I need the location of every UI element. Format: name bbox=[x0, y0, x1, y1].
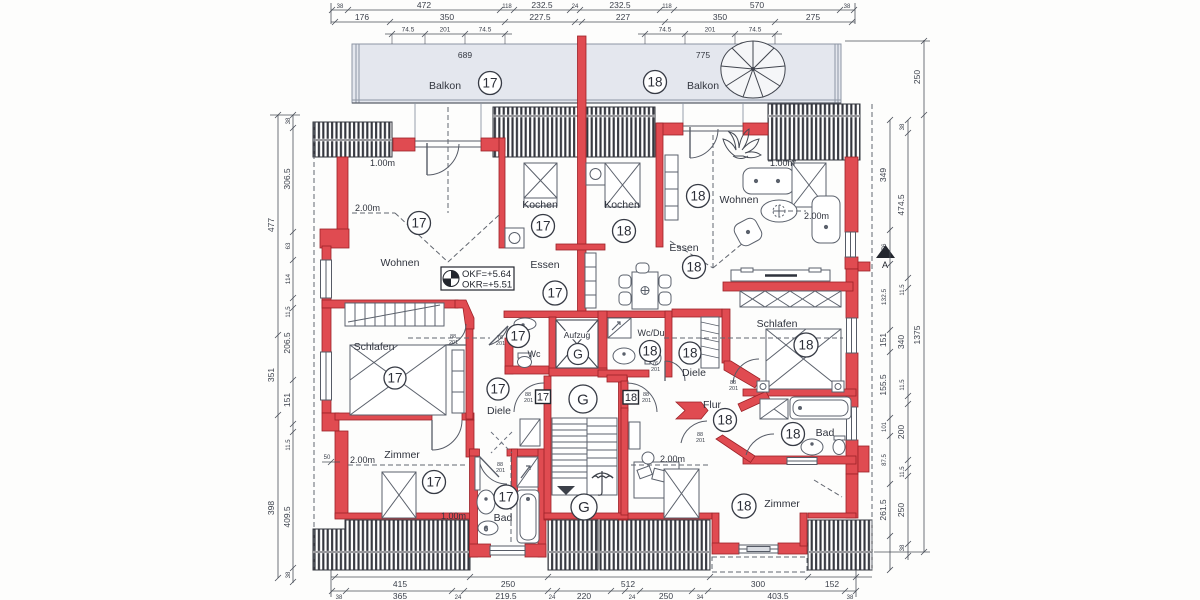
svg-text:Wc/Du: Wc/Du bbox=[638, 328, 665, 338]
svg-text:101: 101 bbox=[882, 421, 888, 432]
svg-text:17: 17 bbox=[490, 382, 505, 397]
svg-text:118: 118 bbox=[502, 4, 512, 10]
svg-text:232.5: 232.5 bbox=[609, 0, 631, 10]
svg-text:38: 38 bbox=[900, 123, 906, 130]
svg-text:152: 152 bbox=[825, 579, 839, 589]
svg-text:132.5: 132.5 bbox=[881, 288, 888, 305]
svg-text:1.00m: 1.00m bbox=[441, 511, 466, 521]
svg-text:17: 17 bbox=[535, 219, 550, 234]
svg-text:24: 24 bbox=[549, 595, 556, 600]
svg-text:201: 201 bbox=[696, 438, 705, 444]
svg-text:Zimmer: Zimmer bbox=[384, 449, 420, 461]
svg-text:689: 689 bbox=[458, 50, 472, 60]
svg-text:201: 201 bbox=[496, 468, 505, 474]
svg-text:220: 220 bbox=[577, 591, 591, 600]
svg-text:74.5: 74.5 bbox=[749, 27, 762, 34]
svg-text:398: 398 bbox=[266, 501, 276, 515]
svg-text:201: 201 bbox=[642, 398, 651, 404]
svg-text:409.5: 409.5 bbox=[282, 506, 292, 528]
svg-text:227.5: 227.5 bbox=[529, 12, 551, 22]
svg-text:155.5: 155.5 bbox=[878, 374, 888, 396]
svg-text:Diele: Diele bbox=[682, 367, 706, 379]
svg-text:477: 477 bbox=[266, 218, 276, 232]
svg-text:250: 250 bbox=[501, 579, 515, 589]
svg-text:250: 250 bbox=[659, 591, 673, 600]
svg-text:151: 151 bbox=[282, 393, 292, 407]
svg-text:512: 512 bbox=[621, 579, 635, 589]
svg-text:38: 38 bbox=[900, 544, 906, 551]
svg-text:38: 38 bbox=[847, 595, 854, 600]
svg-text:2.00m: 2.00m bbox=[660, 454, 685, 464]
svg-text:1.00m: 1.00m bbox=[770, 158, 795, 168]
svg-text:63: 63 bbox=[286, 242, 292, 249]
svg-text:2.00m: 2.00m bbox=[804, 211, 829, 221]
svg-text:306.5: 306.5 bbox=[282, 168, 292, 190]
svg-text:18: 18 bbox=[682, 346, 697, 361]
svg-text:18: 18 bbox=[647, 75, 662, 90]
svg-text:Aufzug: Aufzug bbox=[564, 330, 591, 340]
svg-text:74.5: 74.5 bbox=[402, 27, 415, 34]
svg-text:349: 349 bbox=[878, 168, 888, 182]
svg-text:17: 17 bbox=[537, 392, 549, 404]
svg-text:18: 18 bbox=[717, 413, 732, 428]
svg-text:Wc: Wc bbox=[528, 349, 541, 359]
svg-text:34: 34 bbox=[697, 595, 704, 600]
svg-text:76: 76 bbox=[882, 243, 888, 250]
svg-text:38: 38 bbox=[337, 4, 344, 10]
svg-text:11.5: 11.5 bbox=[900, 379, 906, 391]
svg-text:18: 18 bbox=[686, 260, 701, 275]
svg-text:365: 365 bbox=[393, 591, 407, 600]
svg-text:2.00m: 2.00m bbox=[355, 203, 380, 213]
svg-text:74.5: 74.5 bbox=[479, 27, 492, 34]
svg-text:340: 340 bbox=[896, 335, 906, 349]
svg-text:Kochen: Kochen bbox=[522, 199, 558, 211]
svg-text:118: 118 bbox=[662, 4, 672, 10]
svg-text:201: 201 bbox=[705, 27, 716, 34]
svg-text:227: 227 bbox=[616, 12, 630, 22]
svg-text:38: 38 bbox=[336, 595, 343, 600]
svg-text:G: G bbox=[577, 392, 589, 409]
svg-text:18: 18 bbox=[785, 427, 800, 442]
svg-text:775: 775 bbox=[696, 50, 710, 60]
svg-text:11.5: 11.5 bbox=[900, 284, 906, 296]
svg-text:6: 6 bbox=[484, 526, 488, 533]
svg-text:176: 176 bbox=[355, 12, 369, 22]
svg-text:201: 201 bbox=[651, 367, 660, 373]
svg-text:261.5: 261.5 bbox=[878, 499, 888, 521]
svg-text:74.5: 74.5 bbox=[659, 27, 672, 34]
svg-text:250: 250 bbox=[896, 503, 906, 517]
svg-text:24: 24 bbox=[455, 595, 462, 600]
svg-text:472: 472 bbox=[417, 0, 431, 10]
svg-text:Balkon: Balkon bbox=[429, 80, 461, 92]
svg-text:201: 201 bbox=[496, 341, 505, 347]
svg-text:201: 201 bbox=[440, 27, 451, 34]
svg-text:A: A bbox=[882, 260, 888, 270]
svg-text:250: 250 bbox=[912, 70, 922, 84]
svg-text:1375: 1375 bbox=[912, 325, 922, 344]
svg-text:38: 38 bbox=[844, 4, 851, 10]
svg-text:350: 350 bbox=[713, 12, 727, 22]
svg-text:50: 50 bbox=[324, 455, 331, 461]
svg-text:24: 24 bbox=[572, 4, 579, 10]
svg-text:275: 275 bbox=[806, 12, 820, 22]
svg-text:38: 38 bbox=[286, 571, 292, 578]
svg-text:201: 201 bbox=[449, 340, 458, 346]
svg-text:151: 151 bbox=[878, 333, 888, 347]
svg-text:18: 18 bbox=[616, 224, 631, 239]
svg-text:18: 18 bbox=[690, 189, 705, 204]
svg-text:2.00m: 2.00m bbox=[350, 455, 375, 465]
svg-text:18: 18 bbox=[642, 344, 657, 359]
svg-text:300: 300 bbox=[751, 579, 765, 589]
svg-text:17: 17 bbox=[387, 371, 402, 386]
svg-text:219.5: 219.5 bbox=[495, 591, 517, 600]
svg-text:Essen: Essen bbox=[530, 259, 559, 271]
svg-text:17: 17 bbox=[498, 490, 513, 505]
svg-text:201: 201 bbox=[524, 398, 533, 404]
svg-text:17: 17 bbox=[426, 475, 441, 490]
svg-text:Wohnen: Wohnen bbox=[381, 257, 420, 269]
svg-text:G: G bbox=[573, 348, 583, 362]
svg-text:Zimmer: Zimmer bbox=[764, 498, 800, 510]
svg-text:18: 18 bbox=[798, 338, 813, 353]
svg-text:OKF=+5.64: OKF=+5.64 bbox=[462, 269, 511, 280]
svg-text:474.5: 474.5 bbox=[896, 194, 906, 216]
svg-text:Essen: Essen bbox=[669, 242, 698, 254]
svg-text:G: G bbox=[578, 499, 590, 516]
svg-text:Bad: Bad bbox=[816, 427, 835, 439]
svg-text:11.5: 11.5 bbox=[286, 306, 292, 318]
svg-text:Schlafen: Schlafen bbox=[757, 318, 798, 330]
svg-text:403.5: 403.5 bbox=[767, 591, 789, 600]
svg-text:Kochen: Kochen bbox=[604, 199, 640, 211]
svg-text:350: 350 bbox=[440, 12, 454, 22]
svg-text:Bad: Bad bbox=[494, 512, 513, 524]
svg-text:Schlafen: Schlafen bbox=[354, 341, 395, 353]
svg-text:200: 200 bbox=[896, 425, 906, 439]
svg-text:17: 17 bbox=[482, 76, 497, 91]
svg-text:570: 570 bbox=[750, 0, 764, 10]
svg-text:24: 24 bbox=[629, 595, 636, 600]
svg-text:18: 18 bbox=[625, 392, 637, 404]
svg-text:11.5: 11.5 bbox=[900, 466, 906, 478]
svg-text:17: 17 bbox=[510, 329, 525, 344]
svg-text:415: 415 bbox=[393, 579, 407, 589]
svg-text:Wohnen: Wohnen bbox=[720, 194, 759, 206]
svg-text:11.5: 11.5 bbox=[286, 439, 292, 451]
svg-text:114: 114 bbox=[285, 273, 292, 284]
svg-text:17: 17 bbox=[411, 216, 426, 231]
svg-text:201: 201 bbox=[729, 386, 738, 392]
svg-text:351: 351 bbox=[266, 368, 276, 382]
svg-text:18: 18 bbox=[736, 499, 751, 514]
svg-text:Flur: Flur bbox=[703, 399, 722, 411]
svg-text:17: 17 bbox=[547, 286, 562, 301]
svg-text:232.5: 232.5 bbox=[531, 0, 553, 10]
svg-text:OKR=+5.51: OKR=+5.51 bbox=[462, 280, 512, 291]
svg-text:1.00m: 1.00m bbox=[370, 158, 395, 168]
svg-text:206.5: 206.5 bbox=[282, 332, 292, 354]
svg-text:Balkon: Balkon bbox=[687, 80, 719, 92]
svg-text:38: 38 bbox=[286, 117, 292, 124]
svg-text:87.5: 87.5 bbox=[882, 454, 888, 466]
svg-text:Diele: Diele bbox=[487, 405, 511, 417]
